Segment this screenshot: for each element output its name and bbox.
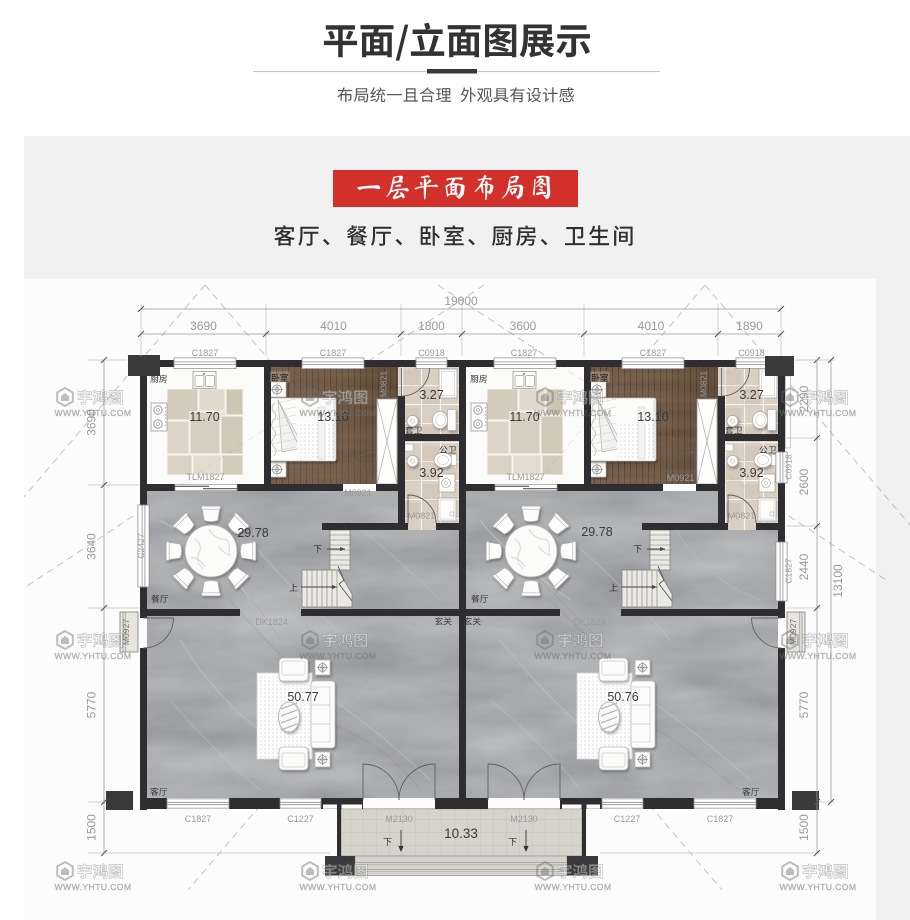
svg-text:13100: 13100 bbox=[831, 564, 845, 598]
svg-text:29.78: 29.78 bbox=[237, 526, 268, 540]
svg-text:WWW.YHTU.COM: WWW.YHTU.COM bbox=[55, 882, 132, 892]
svg-text:WWW.YHTU.COM: WWW.YHTU.COM bbox=[300, 408, 377, 418]
svg-text:M0921: M0921 bbox=[344, 488, 372, 498]
svg-text:3.92: 3.92 bbox=[739, 466, 763, 480]
svg-text:C1827: C1827 bbox=[640, 348, 667, 358]
svg-text:10.33: 10.33 bbox=[444, 826, 478, 841]
svg-text:TLM1827: TLM1827 bbox=[186, 472, 224, 482]
svg-text:19000: 19000 bbox=[444, 294, 478, 308]
svg-text:4010: 4010 bbox=[320, 319, 347, 333]
svg-text:2440: 2440 bbox=[797, 553, 811, 580]
svg-text:C1827: C1827 bbox=[707, 814, 734, 824]
svg-text:M0821: M0821 bbox=[408, 511, 436, 521]
svg-text:WWW.YHTU.COM: WWW.YHTU.COM bbox=[55, 651, 132, 661]
svg-text:WWW.YHTU.COM: WWW.YHTU.COM bbox=[780, 408, 857, 418]
svg-text:1500: 1500 bbox=[85, 814, 99, 841]
svg-text:C0918: C0918 bbox=[738, 348, 765, 358]
svg-text:WWW.YHTU.COM: WWW.YHTU.COM bbox=[535, 882, 612, 892]
svg-text:13.10: 13.10 bbox=[637, 410, 668, 424]
svg-text:11.70: 11.70 bbox=[189, 410, 219, 424]
svg-text:M2130: M2130 bbox=[510, 814, 538, 824]
svg-text:WWW.YHTU.COM: WWW.YHTU.COM bbox=[300, 882, 377, 892]
svg-text:1800: 1800 bbox=[418, 319, 445, 333]
svg-text:WWW.YHTU.COM: WWW.YHTU.COM bbox=[780, 651, 857, 661]
svg-text:C1827: C1827 bbox=[192, 348, 219, 358]
svg-text:3640: 3640 bbox=[85, 533, 99, 560]
svg-text:M0921: M0921 bbox=[667, 473, 695, 483]
svg-text:WWW.YHTU.COM: WWW.YHTU.COM bbox=[55, 408, 132, 418]
svg-text:50.77: 50.77 bbox=[287, 690, 318, 704]
svg-text:WWW.YHTU.COM: WWW.YHTU.COM bbox=[780, 882, 857, 892]
svg-text:M0821: M0821 bbox=[728, 511, 756, 521]
svg-text:29.78: 29.78 bbox=[581, 525, 612, 539]
svg-text:3690: 3690 bbox=[190, 319, 217, 333]
svg-text:WWW.YHTU.COM: WWW.YHTU.COM bbox=[300, 651, 377, 661]
svg-text:TLM1827: TLM1827 bbox=[506, 472, 544, 482]
svg-text:C0918: C0918 bbox=[784, 454, 794, 480]
svg-text:2600: 2600 bbox=[797, 468, 811, 495]
svg-text:5770: 5770 bbox=[85, 691, 99, 718]
svg-text:3600: 3600 bbox=[510, 319, 537, 333]
svg-text:C1827: C1827 bbox=[511, 348, 538, 358]
svg-text:M2130: M2130 bbox=[385, 814, 413, 824]
svg-text:1500: 1500 bbox=[797, 814, 811, 841]
svg-text:DK1824: DK1824 bbox=[255, 617, 288, 627]
svg-text:M0821: M0821 bbox=[379, 371, 389, 397]
svg-text:3.92: 3.92 bbox=[419, 466, 443, 480]
svg-text:WWW.YHTU.COM: WWW.YHTU.COM bbox=[535, 651, 612, 661]
svg-text:C1827: C1827 bbox=[185, 814, 212, 824]
svg-text:C1227: C1227 bbox=[614, 814, 641, 824]
svg-text:3.27: 3.27 bbox=[419, 388, 443, 402]
svg-text:DK1824: DK1824 bbox=[573, 617, 606, 627]
svg-text:5770: 5770 bbox=[797, 691, 811, 718]
svg-text:1890: 1890 bbox=[736, 319, 763, 333]
svg-text:4010: 4010 bbox=[638, 319, 665, 333]
svg-text:C2427: C2427 bbox=[136, 533, 146, 559]
svg-text:C1227: C1227 bbox=[287, 814, 314, 824]
svg-text:C1827: C1827 bbox=[784, 558, 794, 584]
svg-text:M0821: M0821 bbox=[699, 371, 709, 397]
svg-text:C1827: C1827 bbox=[320, 348, 347, 358]
svg-text:WWW.YHTU.COM: WWW.YHTU.COM bbox=[535, 408, 612, 418]
svg-text:50.76: 50.76 bbox=[607, 690, 638, 704]
svg-text:3.27: 3.27 bbox=[739, 388, 763, 402]
svg-text:C0918: C0918 bbox=[418, 348, 445, 358]
